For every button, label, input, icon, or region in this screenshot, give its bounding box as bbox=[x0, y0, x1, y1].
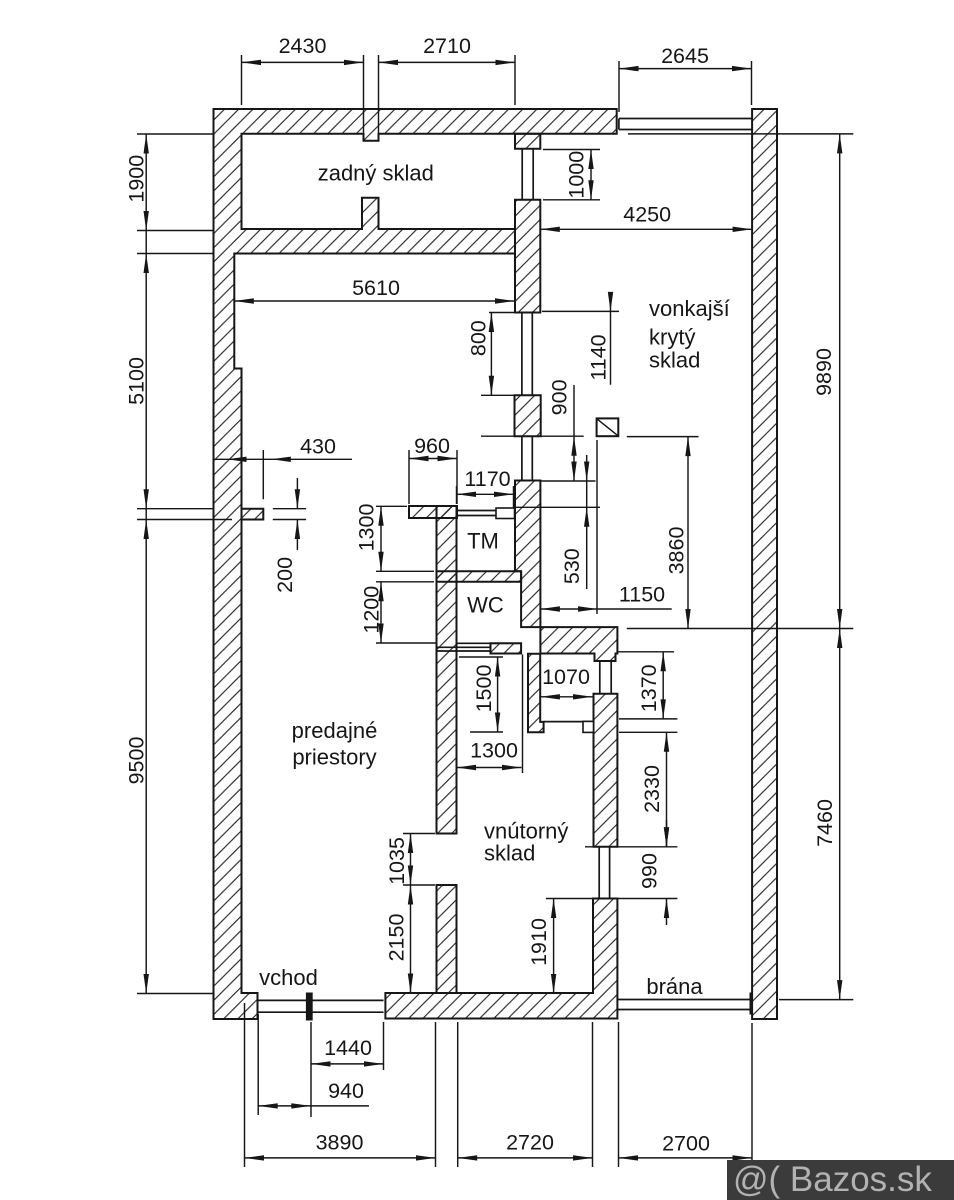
svg-text:4250: 4250 bbox=[623, 203, 671, 227]
svg-text:1200: 1200 bbox=[359, 586, 383, 634]
svg-text:krytý: krytý bbox=[649, 325, 695, 350]
svg-text:1140: 1140 bbox=[587, 334, 611, 380]
svg-text:1900: 1900 bbox=[124, 155, 148, 203]
svg-text:2645: 2645 bbox=[661, 44, 709, 68]
svg-text:9890: 9890 bbox=[812, 348, 836, 396]
svg-text:530: 530 bbox=[560, 548, 584, 584]
svg-text:priestory: priestory bbox=[292, 745, 376, 770]
svg-text:2720: 2720 bbox=[506, 1131, 554, 1155]
svg-text:2710: 2710 bbox=[423, 34, 471, 58]
svg-text:1500: 1500 bbox=[472, 665, 496, 713]
svg-text:2330: 2330 bbox=[640, 765, 664, 813]
svg-text:1300: 1300 bbox=[354, 504, 378, 552]
svg-text:200: 200 bbox=[273, 557, 297, 593]
svg-text:1000: 1000 bbox=[565, 151, 589, 199]
svg-text:5100: 5100 bbox=[124, 357, 148, 405]
svg-text:9500: 9500 bbox=[124, 737, 148, 785]
svg-text:1300: 1300 bbox=[470, 739, 518, 763]
svg-text:2700: 2700 bbox=[662, 1132, 710, 1156]
svg-text:vonkajší: vonkajší bbox=[649, 296, 730, 321]
svg-text:predajné: predajné bbox=[292, 718, 378, 743]
svg-text:800: 800 bbox=[467, 320, 491, 356]
svg-text:3860: 3860 bbox=[665, 527, 689, 575]
svg-text:1910: 1910 bbox=[527, 918, 551, 966]
svg-text:@( Bazos.sk: @( Bazos.sk bbox=[733, 1160, 932, 1199]
svg-text:2150: 2150 bbox=[384, 914, 408, 962]
svg-text:1370: 1370 bbox=[637, 664, 661, 712]
svg-text:900: 900 bbox=[547, 379, 571, 415]
svg-text:1170: 1170 bbox=[464, 467, 510, 491]
svg-text:960: 960 bbox=[414, 434, 450, 458]
svg-text:1150: 1150 bbox=[619, 583, 665, 607]
svg-text:1070: 1070 bbox=[542, 665, 590, 689]
svg-text:WC: WC bbox=[467, 593, 504, 618]
svg-text:sklad: sklad bbox=[649, 348, 700, 373]
svg-text:3890: 3890 bbox=[316, 1131, 364, 1155]
svg-text:1440: 1440 bbox=[324, 1036, 372, 1060]
svg-text:990: 990 bbox=[638, 853, 662, 889]
svg-text:7460: 7460 bbox=[813, 799, 837, 847]
svg-text:zadný sklad: zadný sklad bbox=[318, 161, 434, 186]
svg-text:430: 430 bbox=[300, 435, 336, 459]
svg-text:2430: 2430 bbox=[279, 34, 327, 58]
svg-text:5610: 5610 bbox=[352, 276, 400, 300]
svg-text:brána: brána bbox=[646, 974, 703, 999]
svg-text:sklad: sklad bbox=[484, 841, 535, 866]
svg-text:940: 940 bbox=[328, 1079, 364, 1103]
svg-text:TM: TM bbox=[467, 529, 499, 554]
svg-text:vchod: vchod bbox=[259, 965, 318, 990]
svg-text:1035: 1035 bbox=[385, 837, 409, 885]
